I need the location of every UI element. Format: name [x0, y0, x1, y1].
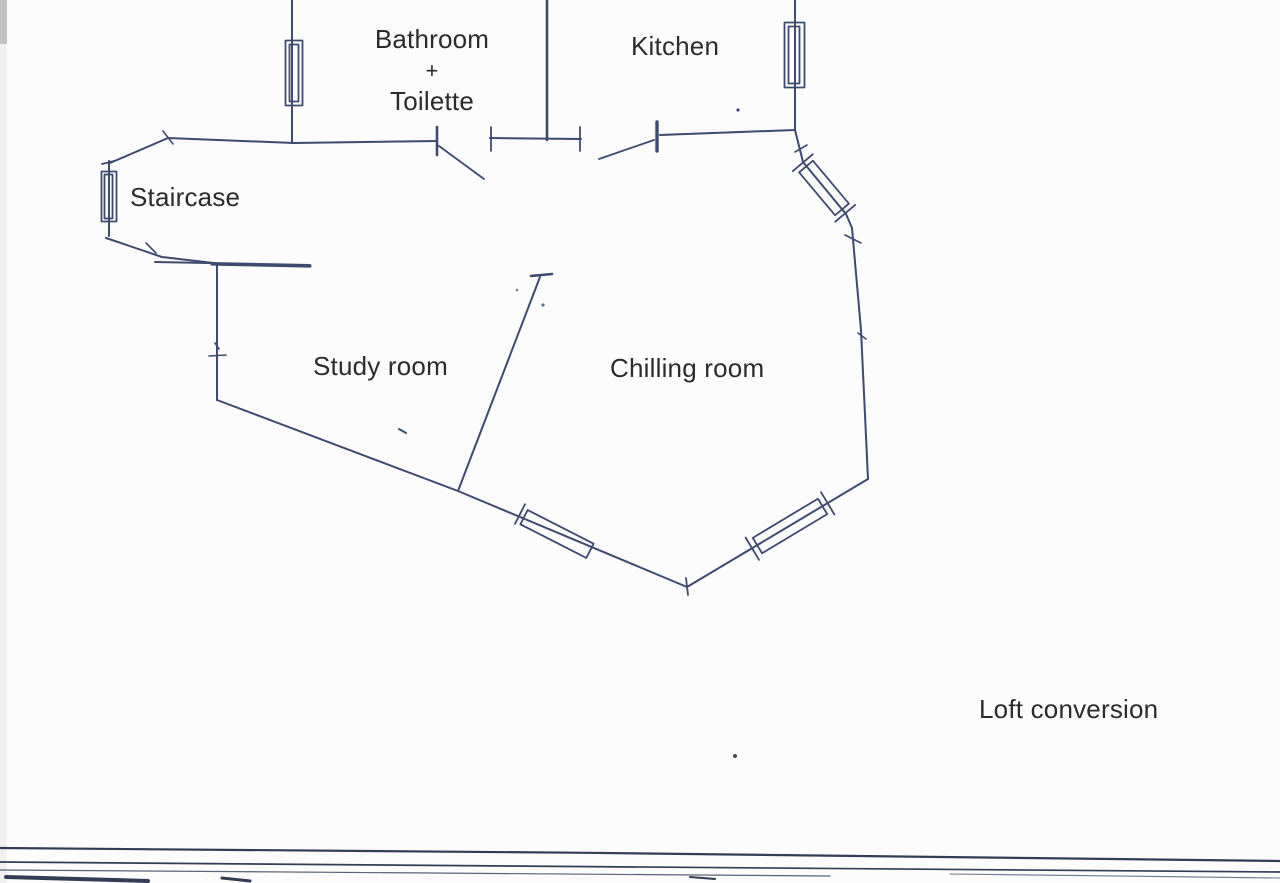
floor-plan-drawing: [0, 0, 1280, 883]
room-label-bathroom-line2: Toilette: [352, 86, 512, 117]
room-label-bathroom-line1: Bathroom: [352, 24, 512, 55]
scanned-floor-plan-page: Bathroom + Toilette Kitchen Staircase St…: [0, 0, 1280, 883]
wall-bottom-right: [687, 479, 868, 587]
scan-line: [0, 848, 1280, 861]
wall-landing-thick: [212, 264, 310, 266]
speck: [541, 303, 544, 306]
wall-staircase-bottom: [106, 238, 222, 264]
scan-lines: [0, 848, 1280, 881]
speck: [399, 429, 406, 433]
scan-line-blot: [6, 877, 148, 881]
scan-line: [0, 870, 830, 876]
scan-line: [950, 874, 1280, 878]
room-label-staircase: Staircase: [130, 182, 240, 213]
speck: [733, 754, 737, 758]
wall-staircase-top: [110, 138, 168, 163]
annotation-loft-conversion: Loft conversion: [979, 694, 1158, 725]
room-label-kitchen: Kitchen: [631, 31, 719, 62]
speck: [516, 289, 519, 292]
wall-top: [168, 138, 437, 143]
room-label-study: Study room: [313, 351, 448, 382]
room-label-bathroom-plus: +: [352, 55, 512, 86]
tick-study-left-1: [209, 355, 226, 356]
window-symbol-bathroom: [286, 41, 303, 106]
room-label-bathroom: Bathroom + Toilette: [352, 24, 512, 117]
scan-line-blot: [690, 877, 715, 879]
wall-kitchen-bottom: [660, 130, 795, 135]
wall-divider: [458, 277, 540, 491]
scan-line: [0, 862, 1280, 872]
wall-divider-cap: [531, 274, 552, 276]
door-swing-kitchen: [599, 140, 654, 159]
speck: [736, 108, 739, 111]
wall-right: [852, 228, 868, 479]
room-label-chilling: Chilling room: [610, 353, 764, 384]
wall-bottom-left: [217, 400, 687, 587]
door-swing-bathroom: [439, 146, 484, 179]
scan-line-blot: [222, 878, 250, 881]
ink-specks: [399, 108, 740, 758]
wall-hall-segment: [490, 138, 581, 139]
tick-bottom-vertex: [686, 578, 688, 595]
